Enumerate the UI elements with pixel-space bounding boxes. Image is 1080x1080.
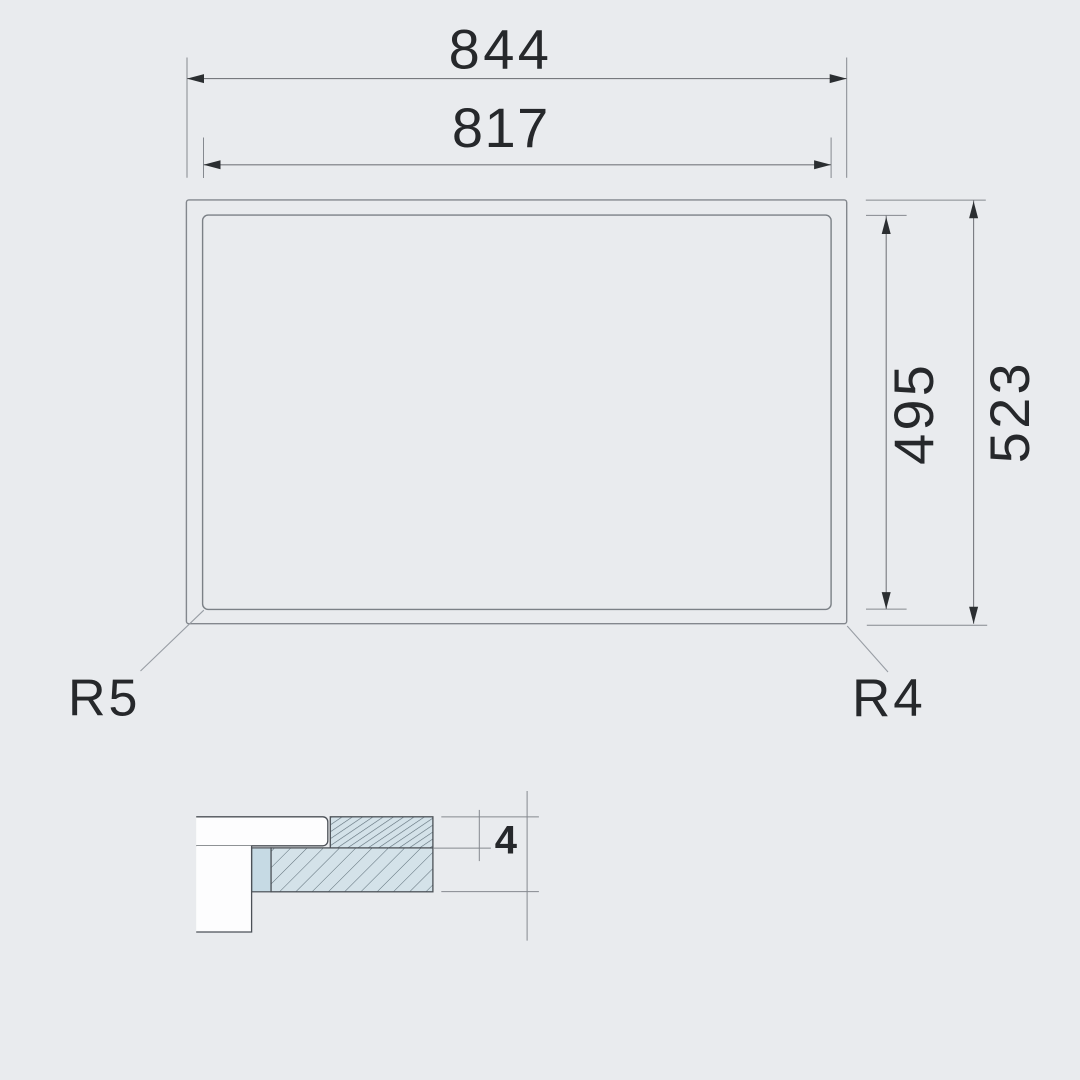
- svg-text:844: 844: [449, 18, 553, 81]
- svg-text:R4: R4: [852, 669, 926, 728]
- svg-text:4: 4: [495, 818, 518, 862]
- svg-text:R5: R5: [68, 669, 140, 727]
- svg-text:817: 817: [452, 96, 550, 159]
- svg-text:495: 495: [882, 362, 945, 465]
- svg-text:523: 523: [978, 360, 1041, 463]
